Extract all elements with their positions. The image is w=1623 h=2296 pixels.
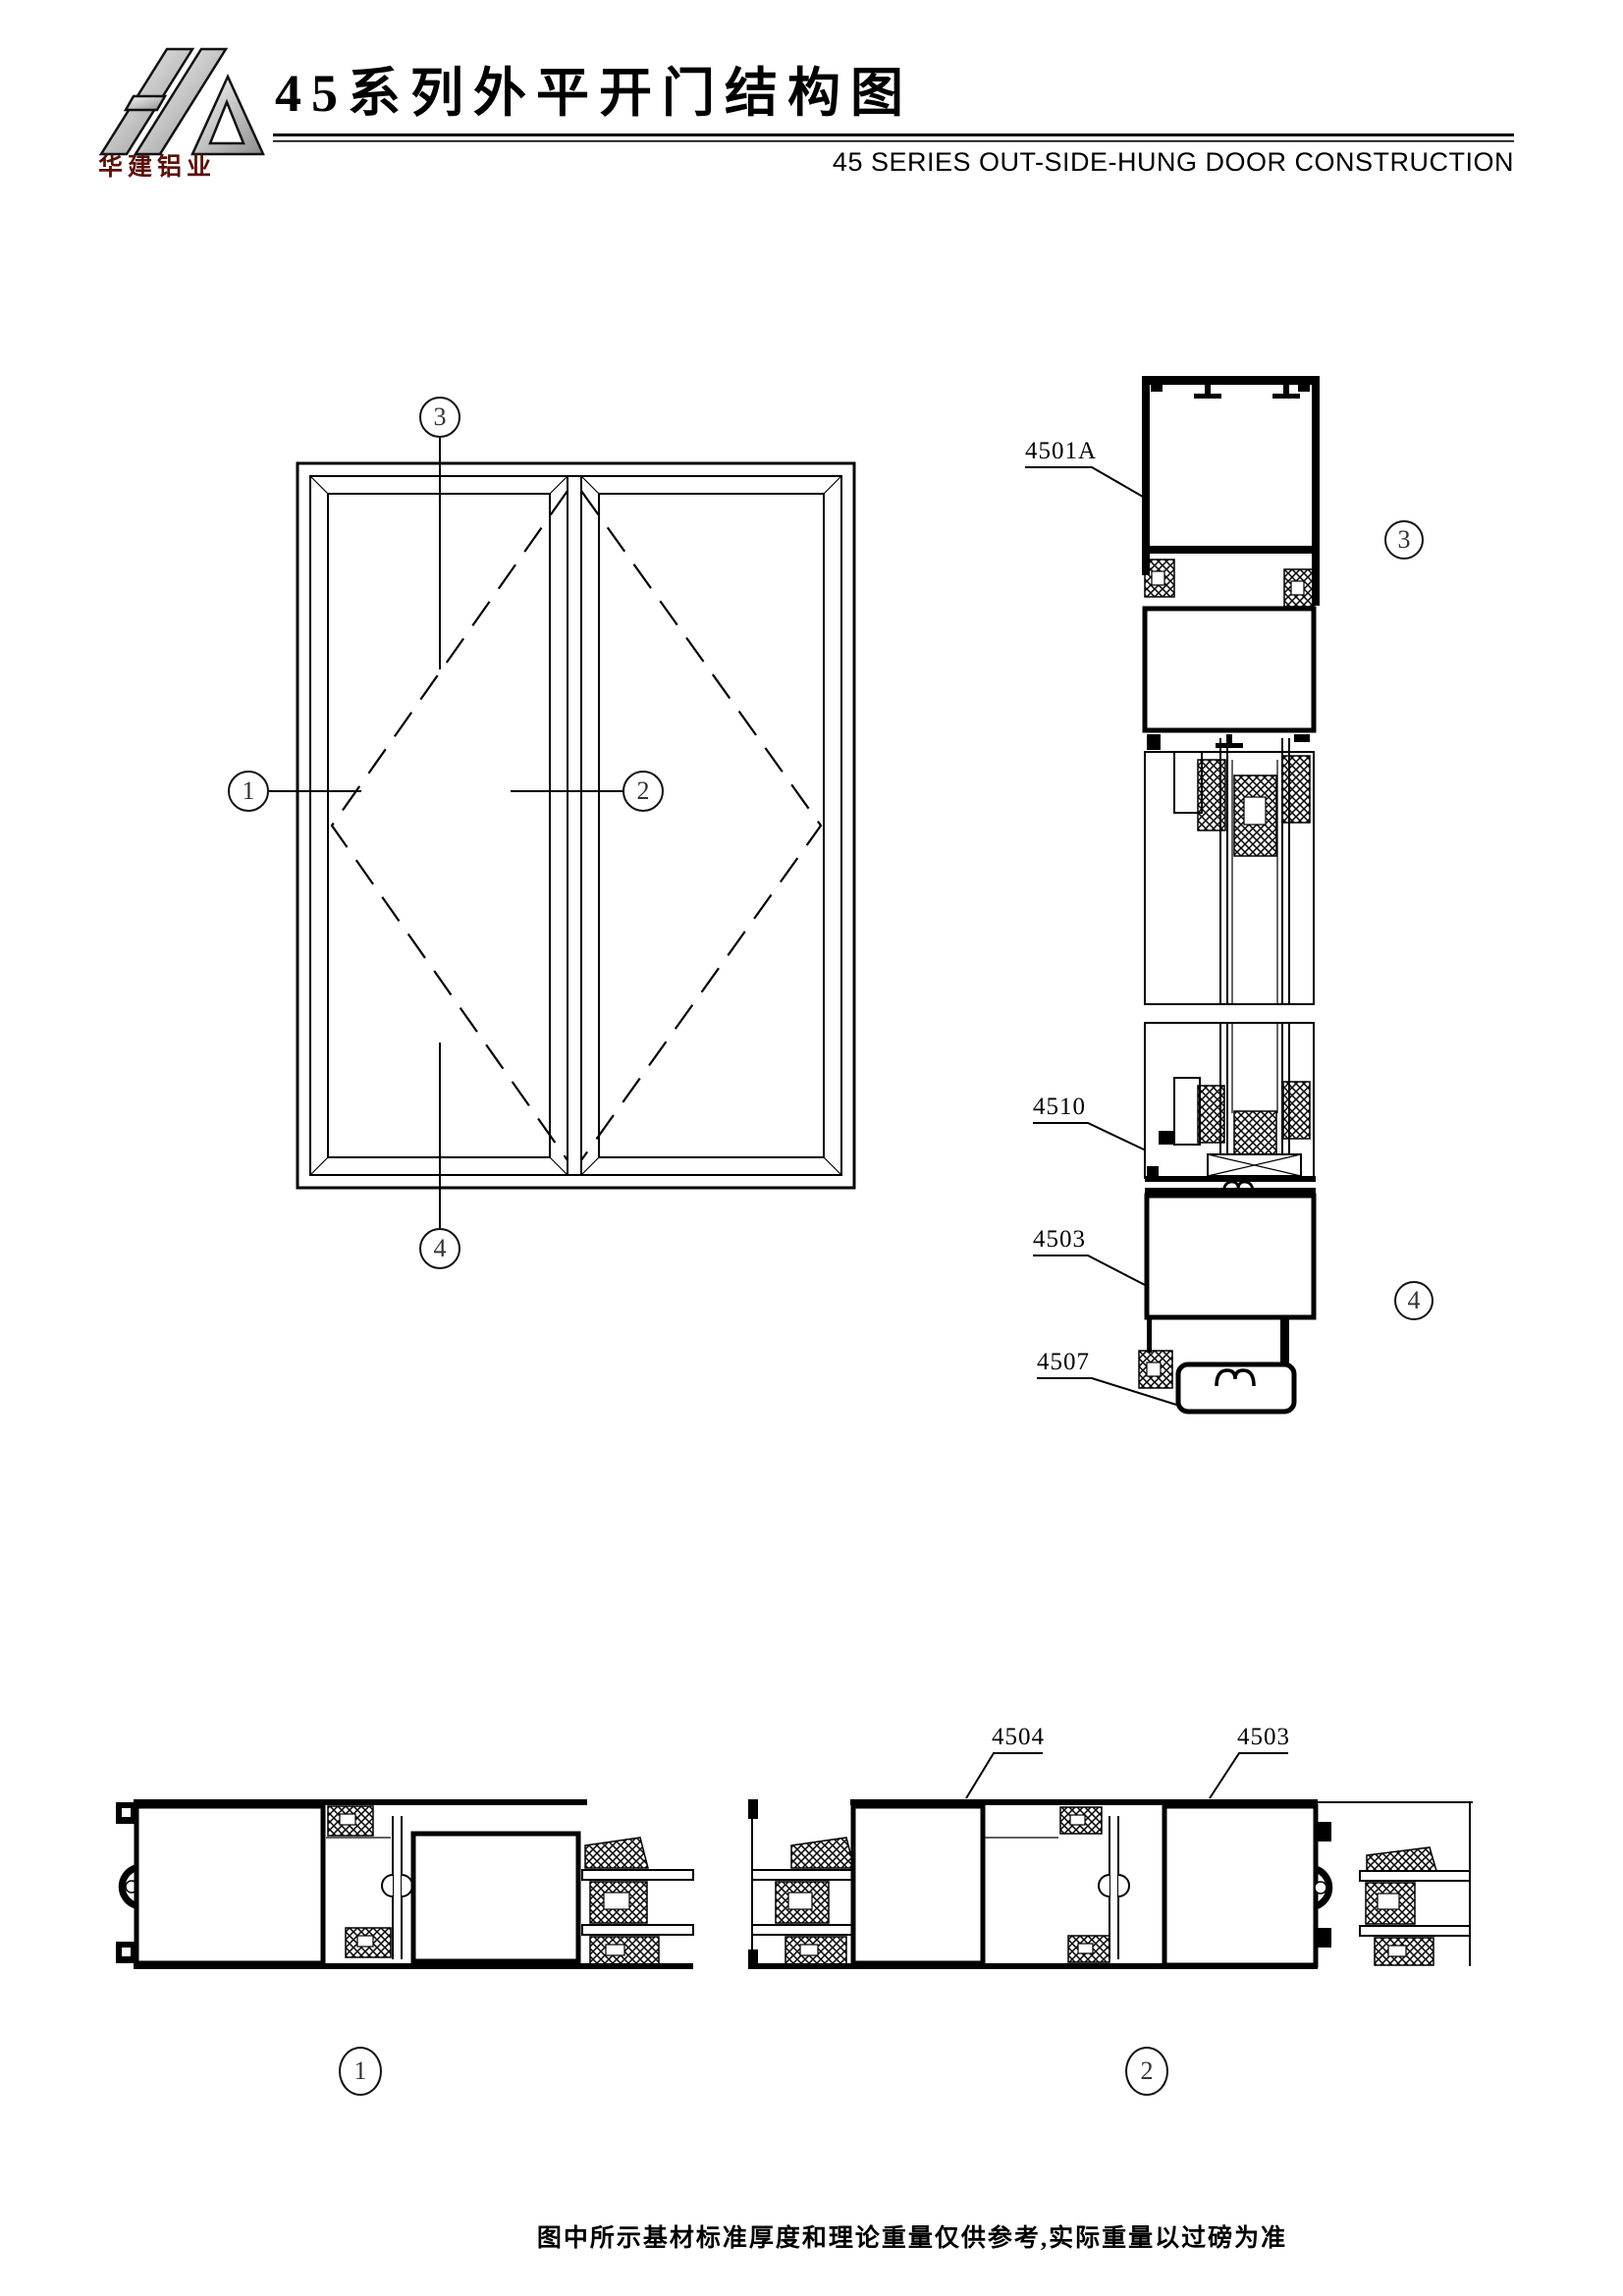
horizontal-section-2 bbox=[748, 1799, 1473, 1969]
callout-2: 2 bbox=[622, 771, 664, 812]
frame-chamber bbox=[136, 1806, 323, 1963]
bottom-frame-profile bbox=[1147, 1196, 1314, 1317]
part-label-head-frame: 4501A bbox=[1025, 438, 1097, 465]
logo-text: 华建铝业 bbox=[98, 147, 216, 183]
glazing-bead bbox=[1174, 1078, 1200, 1145]
part-label-meeting-stile: 4504 bbox=[992, 1724, 1045, 1751]
drawing-sheet: 华建铝业 45系列外平开门结构图 45 SERIES OUT-SIDE-HUNG… bbox=[0, 0, 1623, 2296]
door-leaf-right bbox=[581, 476, 841, 1175]
part-label-bottom-frame: 4503 bbox=[1033, 1226, 1086, 1254]
vertical-section-bottom bbox=[1139, 1023, 1316, 1412]
footer-note: 图中所示基材标准厚度和理论重量仅供参考,实际重量以过磅为准 bbox=[537, 2218, 1287, 2254]
glass-unit-horizontal-2-right bbox=[1360, 1847, 1470, 1965]
callout-1: 1 bbox=[228, 771, 269, 812]
sash-chamber bbox=[413, 1834, 578, 1961]
glass-unit-horizontal-2-left bbox=[752, 1838, 854, 1964]
meeting-stile-chamber bbox=[853, 1806, 983, 1963]
callout-section-4: 4 bbox=[1394, 1281, 1434, 1320]
page-title: 45系列外平开门结构图 bbox=[275, 49, 913, 127]
logo-graphic bbox=[101, 49, 263, 154]
drawing-canvas bbox=[0, 0, 1623, 2296]
callout-section-3: 3 bbox=[1384, 520, 1424, 560]
callout-section-1: 1 bbox=[339, 2047, 382, 2096]
opening-indicator-left bbox=[332, 491, 568, 1160]
callout-section-2: 2 bbox=[1125, 2047, 1168, 2096]
glass-unit-vertical-lower bbox=[1220, 1023, 1289, 1158]
glass-unit-horizontal-1 bbox=[582, 1870, 693, 1964]
part-label-side-frame: 4503 bbox=[1237, 1724, 1290, 1751]
title-rules bbox=[273, 133, 1514, 142]
door-outer-frame bbox=[298, 463, 854, 1188]
part-label-glazing-bead: 4510 bbox=[1033, 1094, 1086, 1121]
opening-indicator-right bbox=[581, 491, 821, 1160]
elevation-callout-leaders bbox=[269, 438, 622, 1228]
part-label-threshold: 4507 bbox=[1037, 1349, 1090, 1376]
sash-top-rail bbox=[1145, 609, 1314, 730]
side-frame-chamber bbox=[1164, 1806, 1316, 1965]
horizontal-section-1 bbox=[116, 1799, 693, 1969]
elevation-view bbox=[269, 438, 854, 1228]
setting-block bbox=[1208, 1154, 1301, 1176]
callout-4: 4 bbox=[419, 1228, 460, 1269]
page-subtitle: 45 SERIES OUT-SIDE-HUNG DOOR CONSTRUCTIO… bbox=[833, 147, 1514, 178]
vertical-section-top bbox=[1142, 376, 1320, 1004]
glass-unit-vertical bbox=[1220, 738, 1289, 1004]
callout-3: 3 bbox=[419, 397, 460, 438]
